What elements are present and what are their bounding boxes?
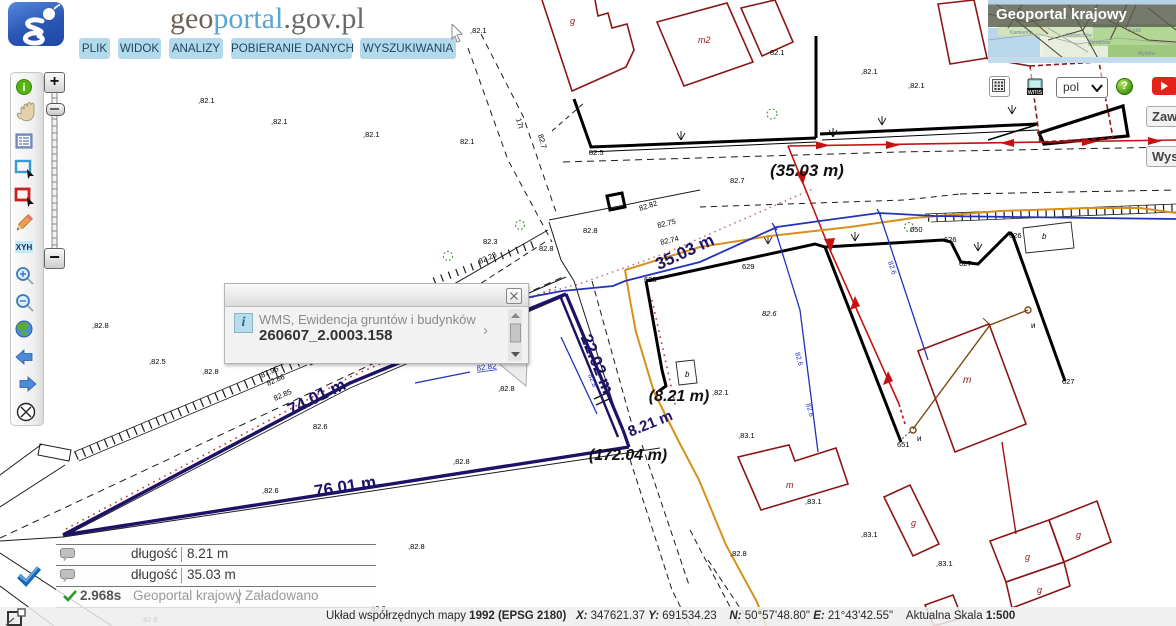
- svg-text:m: m: [786, 480, 794, 490]
- svg-text:,82.1: ,82.1: [861, 67, 878, 76]
- svg-text:g: g: [1037, 585, 1042, 595]
- svg-text:,82.5: ,82.5: [149, 357, 166, 366]
- svg-text:629: 629: [742, 262, 755, 271]
- svg-text:,83.1: ,83.1: [738, 431, 755, 440]
- svg-text:,82.1: ,82.1: [712, 388, 729, 397]
- svg-text:(8.21 m): (8.21 m): [649, 388, 709, 405]
- svg-text:b: b: [685, 370, 690, 379]
- svg-text:,82.1: ,82.1: [271, 117, 288, 126]
- svg-text:82.82: 82.82: [638, 199, 659, 213]
- svg-text:и: и: [917, 434, 921, 443]
- svg-text:76.01 m: 76.01 m: [313, 472, 378, 501]
- svg-text:626: 626: [1009, 231, 1022, 240]
- svg-text:82.1: 82.1: [460, 137, 475, 146]
- svg-text:b: b: [1042, 232, 1047, 241]
- svg-text:,83.1: ,83.1: [805, 497, 822, 506]
- svg-text:,82.8: ,82.8: [92, 321, 109, 330]
- svg-text:82.6: 82.6: [762, 309, 777, 318]
- svg-text:g: g: [911, 518, 916, 528]
- svg-text:Sudół: Sudół: [1128, 28, 1142, 34]
- svg-text:g: g: [1076, 530, 1081, 540]
- svg-text:Romanów: Romanów: [1088, 40, 1111, 46]
- svg-text:i: i: [22, 82, 25, 94]
- svg-text:Kamienna: Kamienna: [1010, 30, 1033, 36]
- svg-text:651: 651: [897, 440, 910, 449]
- svg-text:82.7: 82.7: [730, 176, 745, 185]
- svg-text:82.6: 82.6: [313, 422, 328, 431]
- svg-text:8.21 m: 8.21 m: [625, 407, 675, 440]
- svg-text:,82.8: ,82.8: [453, 457, 470, 466]
- svg-text:,82.1: ,82.1: [363, 130, 380, 139]
- svg-text:,82.1: ,82.1: [908, 81, 925, 90]
- svg-text:,83.1: ,83.1: [861, 530, 878, 539]
- svg-text:628: 628: [644, 275, 657, 284]
- svg-text:22.02 m: 22.02 m: [577, 331, 618, 396]
- svg-text:82.6: 82.6: [793, 352, 804, 367]
- svg-text:,82.8: ,82.8: [730, 549, 747, 558]
- svg-text:wms: wms: [1027, 89, 1043, 96]
- svg-text:650: 650: [910, 225, 923, 234]
- svg-text:82.3: 82.3: [483, 237, 498, 246]
- svg-text:(172.04 m): (172.04 m): [589, 447, 667, 464]
- svg-text:82.8: 82.8: [583, 226, 598, 235]
- svg-text:,82.8: ,82.8: [408, 542, 425, 551]
- svg-text:82.8: 82.8: [539, 244, 554, 253]
- svg-text:82.5: 82.5: [589, 148, 604, 157]
- svg-text:m: m: [963, 375, 971, 386]
- svg-text:627: 627: [959, 259, 972, 268]
- svg-text:,82.8: ,82.8: [202, 367, 219, 376]
- svg-text:82.75: 82.75: [656, 217, 676, 230]
- svg-text:,82.1: ,82.1: [198, 96, 215, 105]
- svg-text:,82.1: ,82.1: [470, 26, 487, 35]
- svg-text:74.01 m: 74.01 m: [284, 375, 348, 419]
- svg-text:,83.1: ,83.1: [936, 559, 953, 568]
- svg-text:(35.03 m): (35.03 m): [770, 161, 844, 180]
- svg-text:XYH: XYH: [16, 243, 33, 252]
- svg-text:627: 627: [1062, 377, 1075, 386]
- svg-text:82.6: 82.6: [804, 403, 815, 418]
- svg-text:82.7: 82.7: [536, 133, 549, 150]
- svg-text:g: g: [1025, 552, 1030, 562]
- svg-text:626: 626: [944, 235, 957, 244]
- svg-text:17t: 17t: [514, 117, 526, 130]
- svg-text:Bodzechów: Bodzechów: [1066, 33, 1092, 39]
- svg-text:g: g: [570, 16, 575, 26]
- svg-text:и: и: [1031, 321, 1035, 330]
- svg-text:Mydłów: Mydłów: [1138, 51, 1155, 57]
- svg-text:,82.6: ,82.6: [262, 486, 279, 495]
